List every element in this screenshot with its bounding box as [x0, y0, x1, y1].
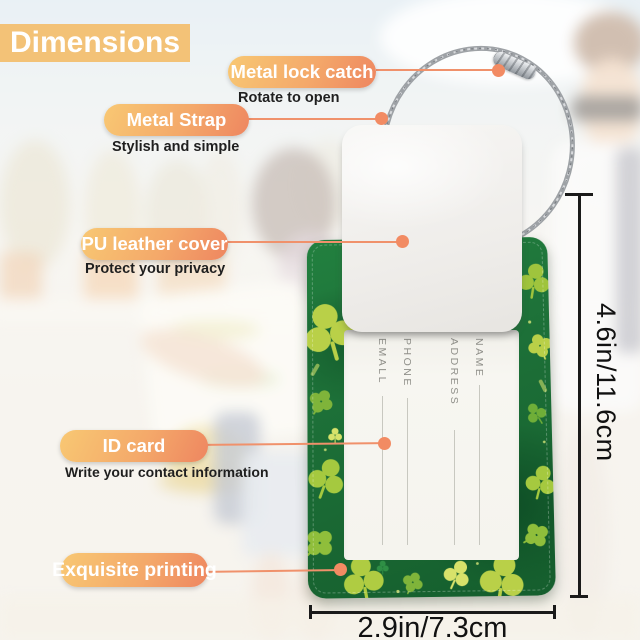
id-card [344, 330, 519, 560]
callout-metal-strap: Metal Strap [104, 104, 249, 136]
anchor-dot-icon [375, 112, 388, 125]
card-write-line [407, 398, 408, 545]
height-dim-bottom-cap [570, 595, 588, 598]
product-dimension-image: NAME ADDRESS PHONE EMALL Metal lock catc… [0, 0, 640, 640]
card-field-name: NAME [473, 338, 485, 378]
anchor-dot-icon [334, 563, 347, 576]
card-write-line [479, 385, 480, 545]
callout-id-card: ID card [60, 430, 208, 462]
card-field-phone: PHONE [401, 338, 413, 388]
callout-exquisite-printing: Exquisite printing [61, 553, 208, 587]
callout-metal-lock-catch: Metal lock catch [228, 56, 376, 88]
height-dim-label: 4.6in/11.6cm [590, 303, 621, 462]
card-write-line [382, 396, 383, 545]
page-title: Dimensions [0, 24, 190, 62]
callout-metal-strap-sub: Stylish and simple [112, 139, 239, 155]
width-dim-label: 2.9in/7.3cm [320, 612, 545, 640]
callout-line [376, 69, 502, 71]
callout-pu-leather-cover-sub: Protect your privacy [85, 261, 225, 277]
anchor-dot-icon [396, 235, 409, 248]
anchor-dot-icon [492, 64, 505, 77]
callout-line [226, 241, 402, 243]
callout-line [248, 118, 381, 120]
callout-pu-leather-cover: PU leather cover [81, 228, 228, 260]
anchor-dot-icon [378, 437, 391, 450]
height-dim-line [578, 194, 581, 597]
card-write-line [454, 430, 455, 545]
card-field-address: ADDRESS [448, 338, 460, 406]
width-dim-right-cap [553, 605, 556, 619]
pu-leather-cover [342, 125, 522, 332]
callout-metal-lock-catch-sub: Rotate to open [238, 90, 340, 106]
card-field-email: EMALL [376, 338, 388, 385]
callout-id-card-sub: Write your contact information [65, 464, 269, 480]
